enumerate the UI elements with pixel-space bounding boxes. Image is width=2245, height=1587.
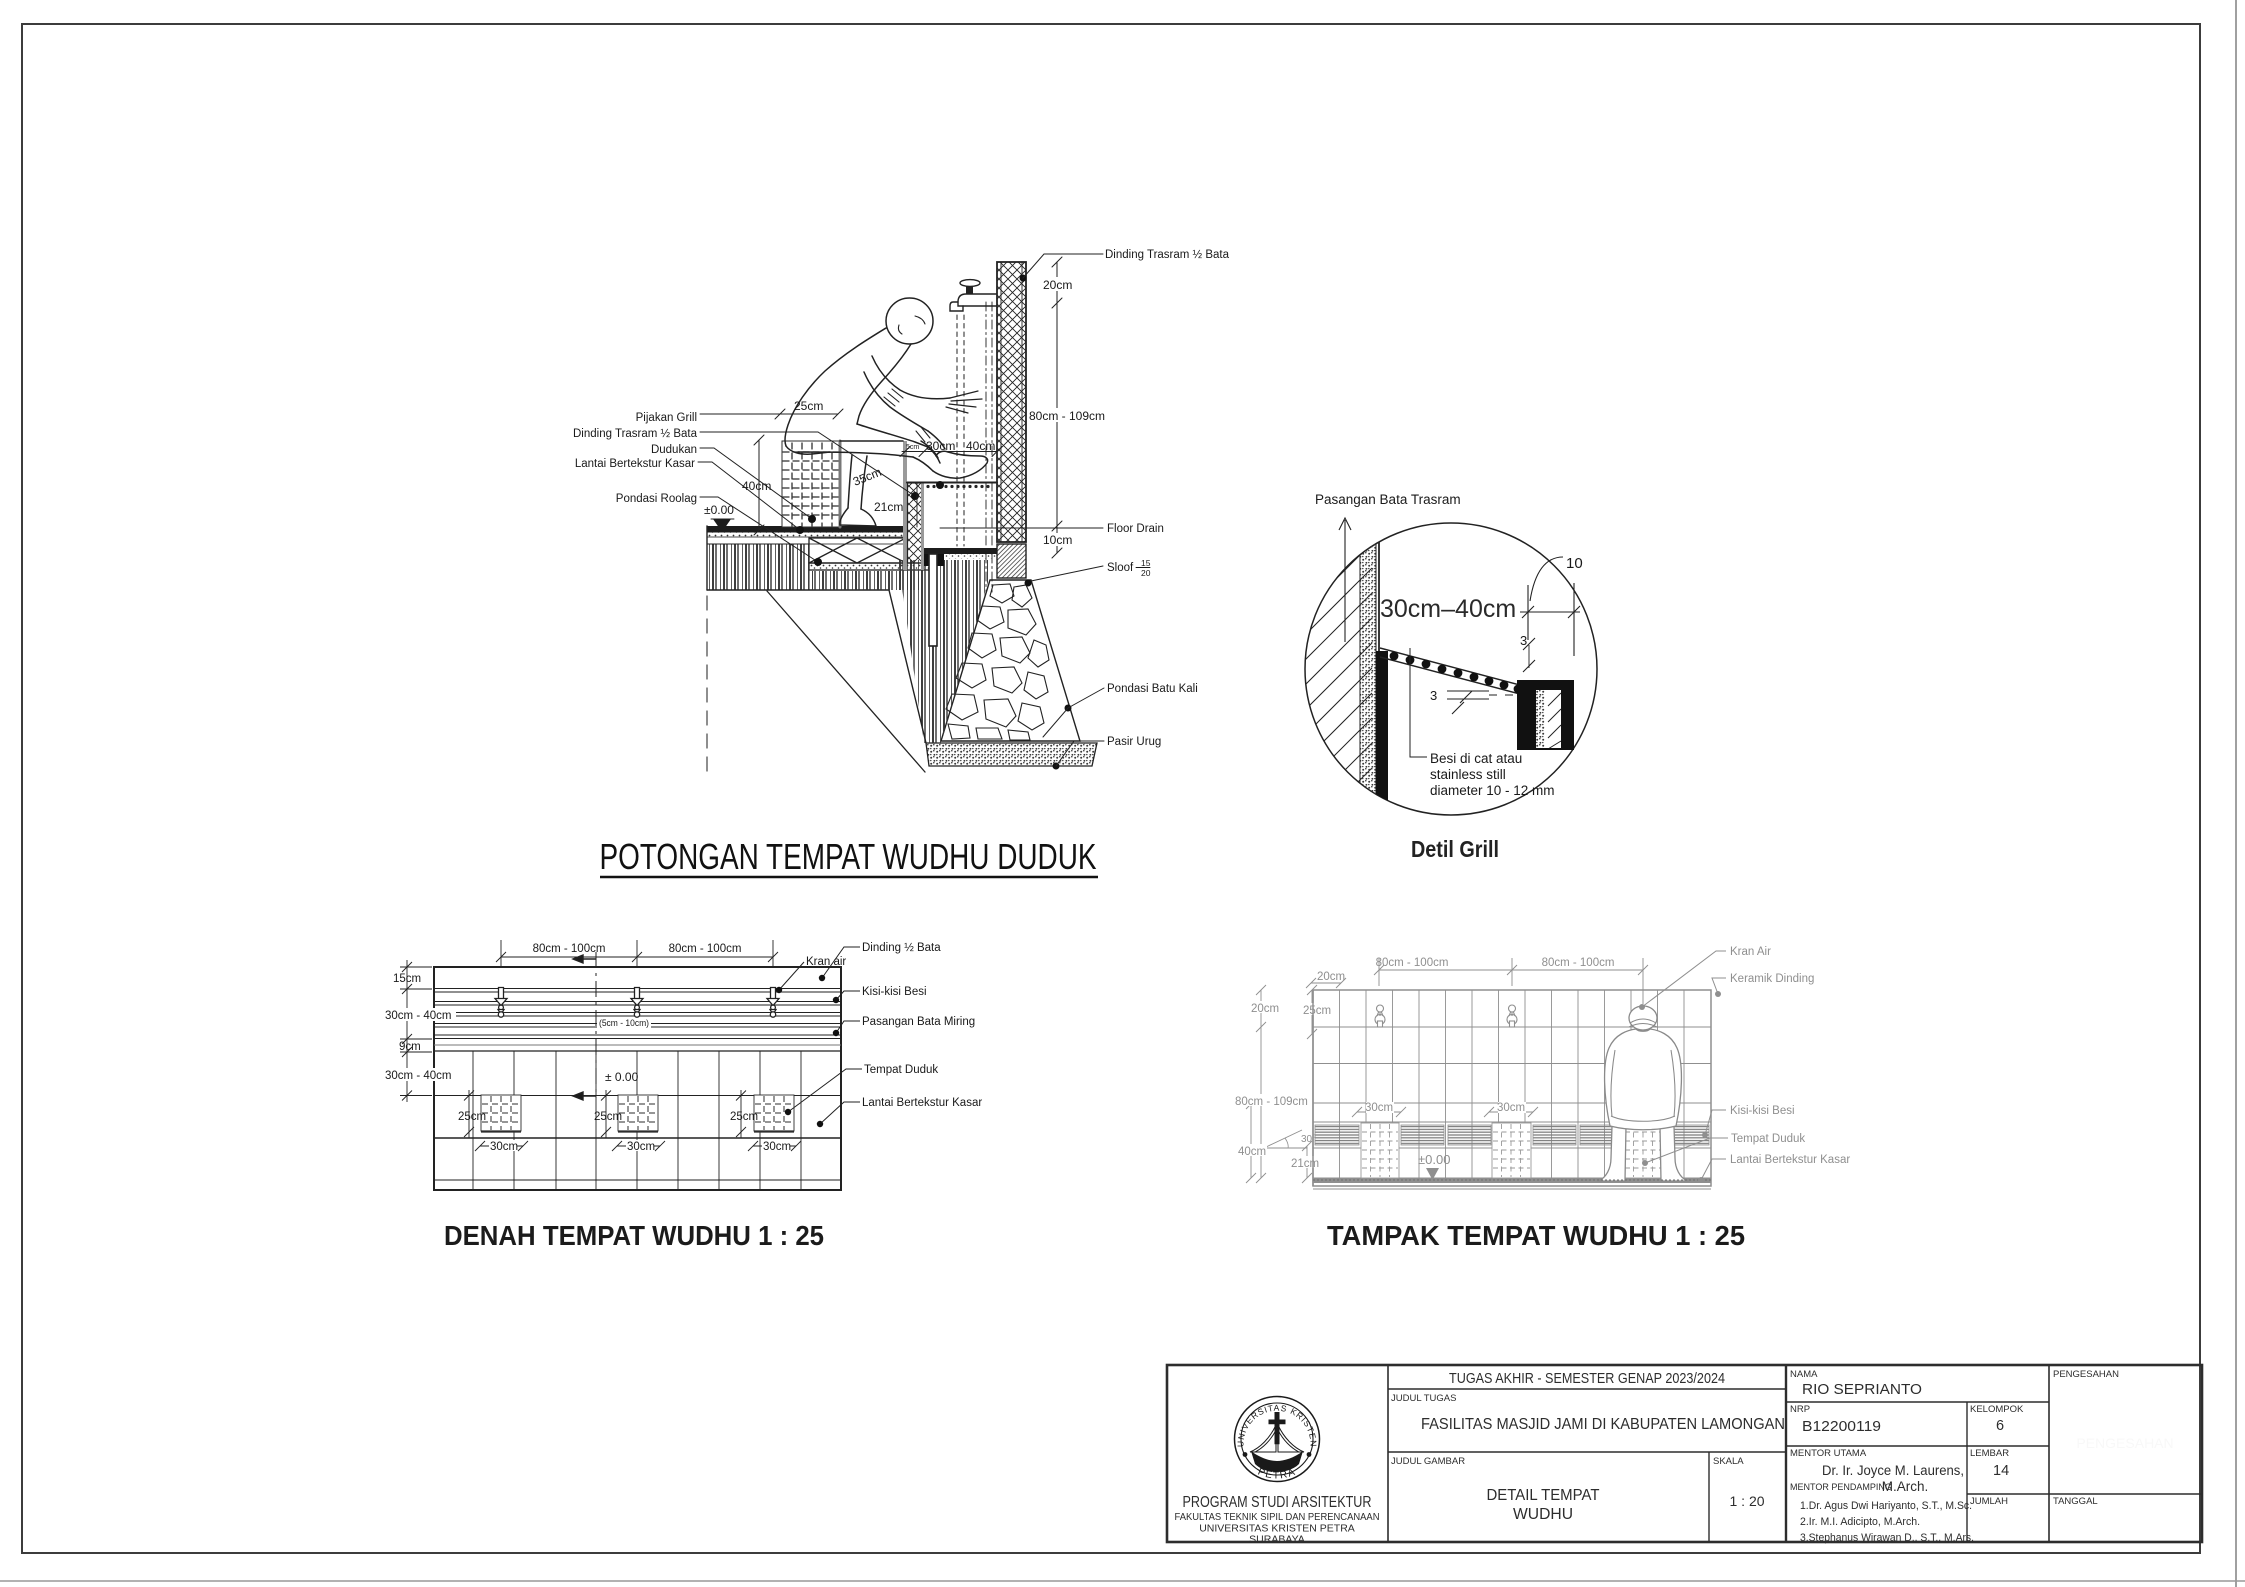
- svg-text:30cm: 30cm: [763, 1141, 791, 1153]
- svg-text:25cm: 25cm: [594, 1111, 622, 1123]
- svg-text:Pasangan Bata Miring: Pasangan Bata Miring: [862, 1016, 975, 1028]
- svg-text:Pasir Urug: Pasir Urug: [1107, 736, 1161, 748]
- svg-text:PENGESAHAN: PENGESAHAN: [2053, 1369, 2119, 1380]
- svg-text:6: 6: [1996, 1418, 2004, 1434]
- svg-text:FAKULTAS TEKNIK SIPIL DAN PERE: FAKULTAS TEKNIK SIPIL DAN PERENCANAAN: [1175, 1511, 1380, 1523]
- svg-text:25cm: 25cm: [1303, 1005, 1331, 1017]
- svg-text:MENTOR PENDAMPING: MENTOR PENDAMPING: [1790, 1482, 1892, 1492]
- svg-text:3: 3: [1520, 633, 1527, 648]
- svg-text:SKALA: SKALA: [1713, 1456, 1744, 1467]
- svg-text:LEMBAR: LEMBAR: [1970, 1448, 2009, 1459]
- svg-text:JUMLAH: JUMLAH: [1970, 1496, 2008, 1507]
- svg-text:Lantai Bertekstur Kasar: Lantai Bertekstur Kasar: [1730, 1154, 1850, 1166]
- svg-text:FASILITAS MASJID JAMI DI KABUP: FASILITAS MASJID JAMI DI KABUPATEN LAMON…: [1421, 1416, 1785, 1433]
- svg-text:NAMA: NAMA: [1790, 1369, 1818, 1380]
- svg-text:JUDUL GAMBAR: JUDUL GAMBAR: [1391, 1456, 1465, 1467]
- svg-text:± 0.00: ± 0.00: [605, 1070, 639, 1084]
- svg-text:5cm: 5cm: [906, 444, 919, 451]
- svg-text:PENGESAHAN: PENGESAHAN: [2076, 1435, 2173, 1451]
- svg-text:stainless still: stainless still: [1430, 767, 1506, 782]
- svg-text:10cm: 10cm: [1043, 533, 1072, 547]
- svg-text:25cm: 25cm: [458, 1111, 486, 1123]
- svg-text:30cm: 30cm: [627, 1141, 655, 1153]
- svg-text:PROGRAM STUDI ARSITEKTUR: PROGRAM STUDI ARSITEKTUR: [1183, 1494, 1372, 1511]
- svg-text:Kran air: Kran air: [806, 956, 846, 968]
- svg-text:RIO SEPRIANTO: RIO SEPRIANTO: [1802, 1382, 1922, 1398]
- svg-text:30cm–40cm: 30cm–40cm: [1380, 595, 1516, 623]
- svg-text:15: 15: [1141, 558, 1151, 568]
- svg-text:3.Stephanus Wirawan D., S.T.,: 3.Stephanus Wirawan D., S.T., M.Ars.: [1800, 1532, 1974, 1544]
- svg-text:TUGAS AKHIR - SEMESTER GENAP 2: TUGAS AKHIR - SEMESTER GENAP 2023/2024: [1449, 1370, 1725, 1387]
- svg-text:Sloof: Sloof: [1107, 562, 1134, 574]
- svg-text:Keramik Dinding: Keramik Dinding: [1730, 973, 1814, 985]
- svg-text:MENTOR UTAMA: MENTOR UTAMA: [1790, 1448, 1867, 1459]
- svg-text:TAMPAK TEMPAT WUDHU 1 : 25: TAMPAK TEMPAT WUDHU 1 : 25: [1327, 1220, 1745, 1251]
- svg-text:Lantai Bertekstur Kasar: Lantai Bertekstur Kasar: [575, 458, 695, 470]
- svg-text:20cm: 20cm: [1317, 971, 1345, 983]
- svg-text:KELOMPOK: KELOMPOK: [1970, 1404, 2024, 1415]
- svg-text:20: 20: [1141, 568, 1151, 578]
- svg-text:(5cm - 10cm): (5cm - 10cm): [599, 1018, 649, 1028]
- svg-text:Pondasi Roolag: Pondasi Roolag: [616, 493, 697, 505]
- svg-text:20cm: 20cm: [1043, 278, 1072, 292]
- svg-text:30°: 30°: [1301, 1134, 1316, 1145]
- svg-text:Kisi-kisi Besi: Kisi-kisi Besi: [862, 986, 927, 998]
- svg-text:40cm: 40cm: [742, 479, 771, 493]
- svg-text:40cm: 40cm: [966, 439, 995, 453]
- svg-text:30cm: 30cm: [926, 439, 955, 453]
- svg-text:80cm - 100cm: 80cm - 100cm: [1542, 957, 1615, 969]
- svg-text:WUDHU: WUDHU: [1513, 1506, 1573, 1523]
- svg-text:POTONGAN TEMPAT WUDHU DUDUK: POTONGAN TEMPAT WUDHU DUDUK: [600, 836, 1097, 877]
- svg-text:Tempat Duduk: Tempat Duduk: [1731, 1133, 1805, 1145]
- svg-text:25cm: 25cm: [794, 399, 823, 413]
- svg-text:SURABAYA: SURABAYA: [1249, 1534, 1305, 1546]
- svg-text:B12200119: B12200119: [1802, 1419, 1881, 1435]
- svg-text:Besi di cat atau: Besi di cat atau: [1430, 751, 1522, 766]
- svg-text:Dinding ½ Bata: Dinding ½ Bata: [862, 942, 941, 954]
- svg-text:30cm: 30cm: [1497, 1102, 1525, 1114]
- svg-text:3: 3: [1430, 688, 1437, 703]
- svg-text:21cm: 21cm: [1291, 1158, 1319, 1170]
- svg-text:10: 10: [1566, 555, 1583, 572]
- svg-text:15cm: 15cm: [393, 973, 421, 985]
- svg-text:30cm: 30cm: [1365, 1102, 1393, 1114]
- svg-text:Kisi-kisi Besi: Kisi-kisi Besi: [1730, 1105, 1795, 1117]
- svg-text:80cm - 100cm: 80cm - 100cm: [669, 943, 742, 955]
- svg-text:DENAH TEMPAT WUDHU 1 : 25: DENAH TEMPAT WUDHU 1 : 25: [444, 1220, 824, 1251]
- svg-text:JUDUL TUGAS: JUDUL TUGAS: [1391, 1393, 1456, 1404]
- svg-text:80cm - 109cm: 80cm - 109cm: [1029, 409, 1105, 423]
- svg-text:Detil Grill: Detil Grill: [1411, 836, 1499, 862]
- svg-text:DETAIL TEMPAT: DETAIL TEMPAT: [1487, 1487, 1601, 1504]
- svg-text:Dinding Trasram ½ Bata: Dinding Trasram ½ Bata: [1105, 249, 1230, 261]
- svg-text:30cm - 40cm: 30cm - 40cm: [385, 1070, 451, 1082]
- svg-text:Pasangan Bata Trasram: Pasangan Bata Trasram: [1315, 492, 1461, 507]
- svg-text:±0.00: ±0.00: [1418, 1152, 1450, 1167]
- svg-text:1 : 20: 1 : 20: [1729, 1493, 1764, 1509]
- svg-text:14: 14: [1993, 1463, 2009, 1479]
- svg-text:2.Ir. M.I. Adicipto, M.Arch.: 2.Ir. M.I. Adicipto, M.Arch.: [1800, 1516, 1920, 1528]
- svg-text:Dr. Ir. Joyce M. Laurens,: Dr. Ir. Joyce M. Laurens,: [1822, 1463, 1964, 1478]
- svg-text:30cm: 30cm: [490, 1141, 518, 1153]
- svg-text:80cm - 100cm: 80cm - 100cm: [533, 943, 606, 955]
- svg-text:Pondasi Batu Kali: Pondasi Batu Kali: [1107, 683, 1198, 695]
- svg-text:40cm: 40cm: [1238, 1146, 1266, 1158]
- svg-text:diameter 10 - 12 mm: diameter 10 - 12 mm: [1430, 783, 1555, 798]
- svg-text:TANGGAL: TANGGAL: [2053, 1496, 2098, 1507]
- svg-text:30cm - 40cm: 30cm - 40cm: [385, 1010, 451, 1022]
- svg-text:21cm: 21cm: [874, 500, 903, 514]
- svg-text:80cm - 109cm: 80cm - 109cm: [1235, 1096, 1308, 1108]
- svg-text:Kran Air: Kran Air: [1730, 946, 1771, 958]
- svg-text:Tempat Duduk: Tempat Duduk: [864, 1064, 938, 1076]
- svg-text:Pijakan Grill: Pijakan Grill: [636, 412, 697, 424]
- svg-text:35cm: 35cm: [851, 465, 883, 489]
- svg-text:80cm - 100cm: 80cm - 100cm: [1376, 957, 1449, 969]
- svg-text:±0.00: ±0.00: [704, 503, 734, 517]
- svg-text:Lantai Bertekstur Kasar: Lantai Bertekstur Kasar: [862, 1097, 982, 1109]
- svg-text:Dinding Trasram ½ Bata: Dinding Trasram ½ Bata: [573, 428, 698, 440]
- svg-text:NRP: NRP: [1790, 1404, 1810, 1415]
- svg-text:25cm: 25cm: [730, 1111, 758, 1123]
- svg-text:Floor Drain: Floor Drain: [1107, 523, 1164, 535]
- svg-text:1.Dr. Agus Dwi Hariyanto, S.T.: 1.Dr. Agus Dwi Hariyanto, S.T., M.Sc.: [1800, 1500, 1972, 1512]
- svg-text:9cm: 9cm: [399, 1041, 421, 1053]
- svg-text:Dudukan: Dudukan: [651, 444, 697, 456]
- svg-text:20cm: 20cm: [1251, 1003, 1279, 1015]
